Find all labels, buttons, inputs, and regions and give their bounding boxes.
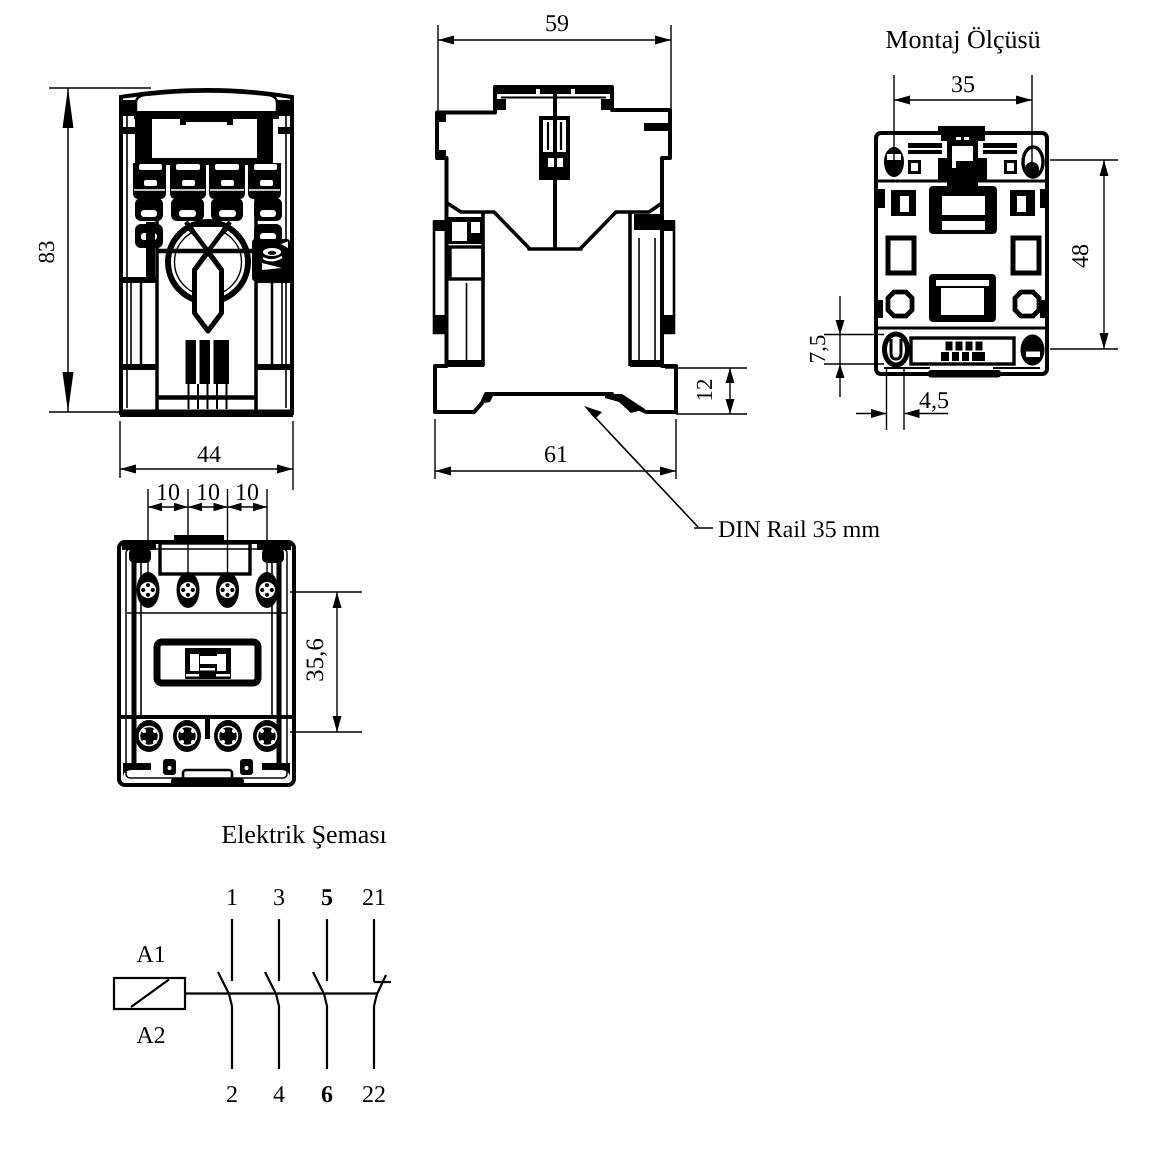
svg-text:4,5: 4,5 bbox=[919, 388, 949, 414]
svg-text:61: 61 bbox=[544, 442, 568, 468]
svg-text:Montaj Ölçüsü: Montaj Ölçüsü bbox=[885, 25, 1040, 54]
svg-text:48: 48 bbox=[1068, 244, 1094, 268]
svg-text:6: 6 bbox=[321, 1082, 333, 1108]
svg-text:10: 10 bbox=[156, 480, 180, 506]
svg-text:A2: A2 bbox=[136, 1023, 165, 1049]
svg-text:22: 22 bbox=[362, 1082, 386, 1108]
svg-text:3: 3 bbox=[273, 885, 285, 911]
svg-text:59: 59 bbox=[545, 11, 569, 37]
svg-text:1: 1 bbox=[226, 885, 238, 911]
svg-text:35,6: 35,6 bbox=[302, 638, 329, 682]
svg-text:21: 21 bbox=[362, 885, 386, 911]
svg-text:10: 10 bbox=[196, 480, 220, 506]
svg-text:5: 5 bbox=[321, 885, 333, 911]
svg-text:83: 83 bbox=[34, 241, 59, 264]
svg-text:7,5: 7,5 bbox=[805, 335, 830, 364]
svg-text:A1: A1 bbox=[136, 942, 165, 968]
svg-text:35: 35 bbox=[951, 72, 975, 98]
svg-text:DIN Rail 35 mm: DIN Rail 35 mm bbox=[718, 517, 880, 543]
svg-text:2: 2 bbox=[226, 1082, 238, 1108]
svg-text:10: 10 bbox=[235, 480, 259, 506]
svg-text:44: 44 bbox=[197, 442, 221, 468]
svg-text:4: 4 bbox=[273, 1082, 285, 1108]
svg-text:Elektrik Şeması: Elektrik Şeması bbox=[221, 820, 386, 849]
svg-text:12: 12 bbox=[692, 379, 717, 402]
